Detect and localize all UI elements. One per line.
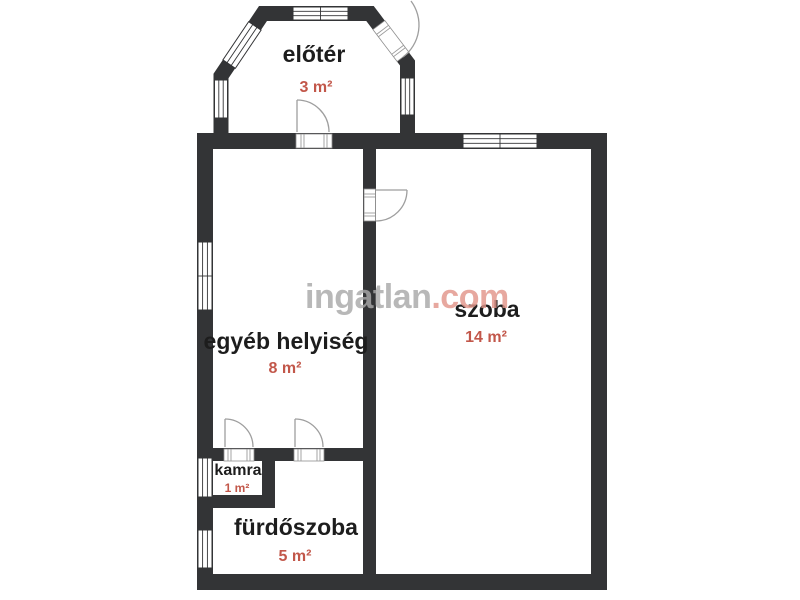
door-szoba-arc xyxy=(376,190,407,221)
window-eloter-left xyxy=(215,80,228,118)
window-szoba-top xyxy=(463,134,537,148)
room-area-kamra: 1 m² xyxy=(225,481,250,495)
watermark-tld: .com xyxy=(431,278,508,316)
watermark: ingatlan.com xyxy=(305,278,509,316)
door-kamra-arc xyxy=(225,419,253,447)
window-egyeb-left xyxy=(198,242,212,310)
room-name-furdoszoba: fürdőszoba xyxy=(234,514,358,540)
room-area-eloter: 3 m² xyxy=(300,79,333,96)
door-furdo-arc xyxy=(295,419,323,447)
room-name-kamra: kamra xyxy=(214,462,261,479)
threshold-kamra xyxy=(224,449,254,461)
room-name-egyeb-helyiseg: egyéb helyiség xyxy=(204,328,369,354)
room-name-eloter: előtér xyxy=(283,41,346,67)
floor-plan: előtér 3 m² egyéb helyiség 8 m² szoba 14… xyxy=(0,0,800,600)
threshold-furdo xyxy=(294,449,324,461)
threshold-eloter-egyeb xyxy=(296,134,332,148)
room-area-furdoszoba: 5 m² xyxy=(279,548,312,565)
window-eloter-top xyxy=(293,7,348,20)
watermark-brand: ingatlan xyxy=(305,278,431,316)
room-area-egyeb-helyiseg: 8 m² xyxy=(269,360,302,377)
window-furdo-left xyxy=(198,530,212,568)
room-area-szoba: 14 m² xyxy=(465,329,507,346)
window-eloter-right xyxy=(401,78,414,115)
window-kamra-left xyxy=(198,458,212,497)
threshold-szoba xyxy=(364,189,376,221)
